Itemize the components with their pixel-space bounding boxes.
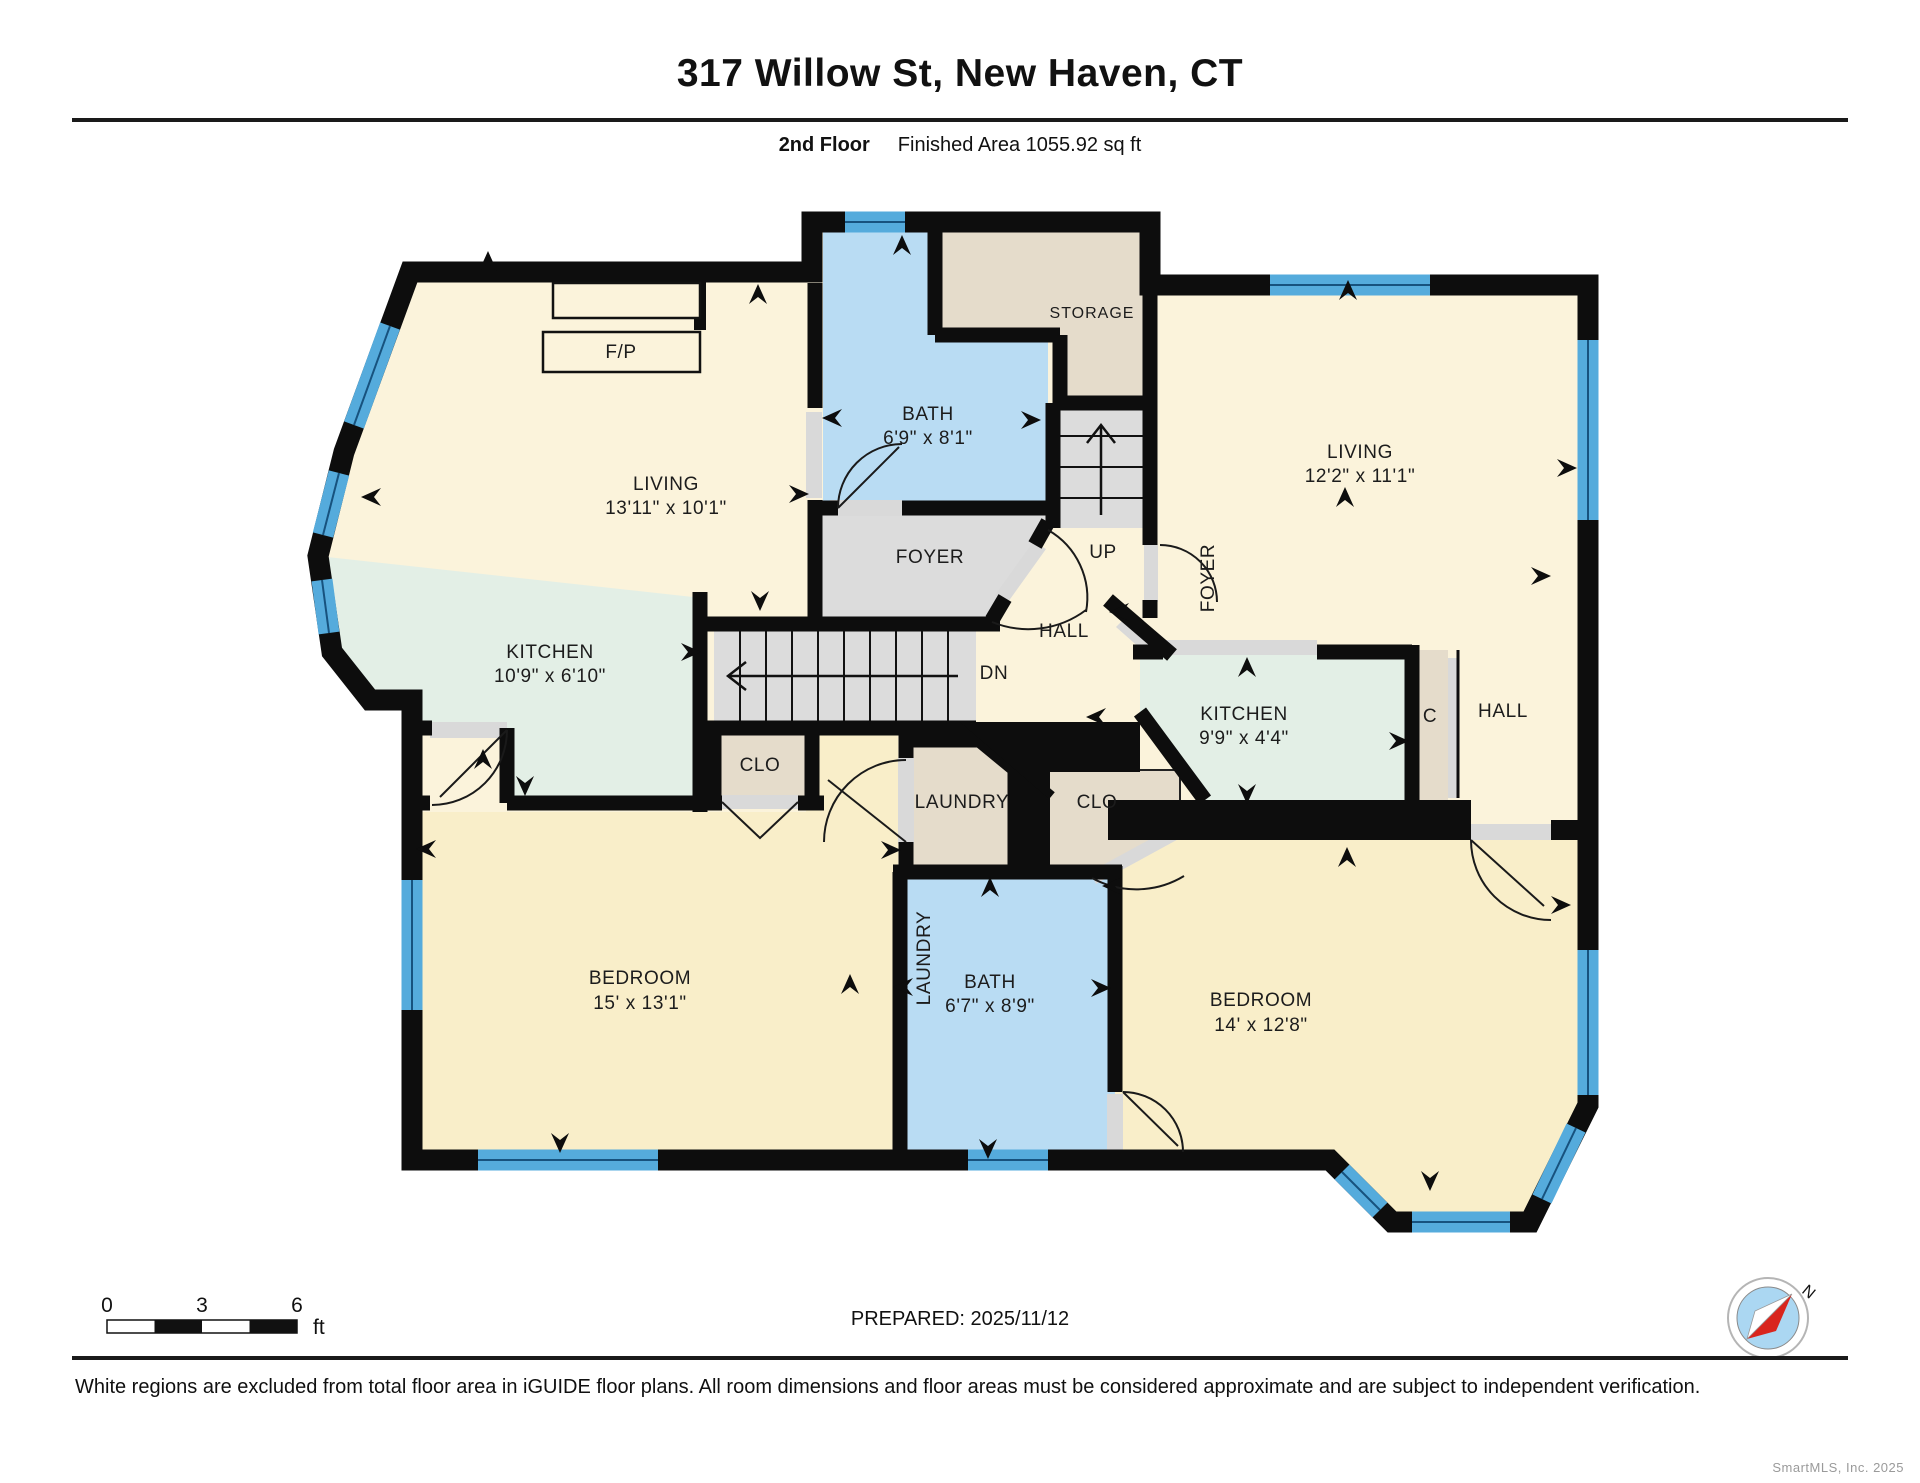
room-label-bath2: BATH: [964, 972, 1016, 993]
room-dims-bath2: 6'7" x 8'9": [945, 996, 1035, 1017]
disclaimer-text: White regions are excluded from total fl…: [75, 1376, 1775, 1399]
room-label-living1: LIVING: [633, 474, 699, 495]
room-dims-living2: 12'2" x 11'1": [1305, 466, 1416, 487]
room-dims-bedroom2: 14' x 12'8": [1214, 1015, 1308, 1036]
room-dims-kitchen2: 9'9" x 4'4": [1199, 728, 1289, 749]
prepared-date: PREPARED: 2025/11/12: [0, 1308, 1920, 1331]
room-label-foyer2: FOYER: [1198, 544, 1219, 612]
room-label-bedroom1: BEDROOM: [589, 968, 691, 989]
stairs-down-label: DN: [980, 663, 1009, 684]
room-label-storage: STORAGE: [1050, 305, 1135, 322]
room-label-closet-c: C: [1423, 706, 1437, 727]
staircase-down: [714, 624, 976, 728]
room-label-living2: LIVING: [1327, 442, 1393, 463]
room-label-hall-center: HALL: [1039, 621, 1089, 642]
room-dims-living1: 13'11" x 10'1": [605, 498, 727, 519]
room-label-bath1: BATH: [902, 404, 954, 425]
room-label-hall-right: HALL: [1478, 701, 1528, 722]
room-label-laundry2: LAUNDRY: [914, 911, 935, 1006]
floor-plan-drawing: LIVING 13'11" x 10'1" KITCHEN 10'9" x 6'…: [0, 0, 1920, 1483]
footer-divider: [72, 1356, 1848, 1360]
stairs-up-label: UP: [1089, 542, 1117, 563]
staircase-up: [1053, 403, 1150, 528]
room-label-laundry1: LAUNDRY: [915, 792, 1010, 813]
floor-plan-page: 317 Willow St, New Haven, CT 2nd FloorFi…: [0, 0, 1920, 1483]
watermark: SmartMLS, Inc. 2025: [1772, 1460, 1904, 1475]
room-dims-bath1: 6'9" x 8'1": [883, 428, 973, 449]
room-label-foyer1: FOYER: [896, 547, 964, 568]
room-label-clo2: CLO: [1077, 792, 1118, 813]
room-label-clo1: CLO: [740, 755, 781, 776]
room-label-kitchen2: KITCHEN: [1200, 704, 1288, 725]
fireplace-label: F/P: [605, 342, 636, 363]
room-dims-bedroom1: 15' x 13'1": [593, 993, 687, 1014]
room-label-kitchen1: KITCHEN: [506, 642, 594, 663]
room-dims-kitchen1: 10'9" x 6'10": [494, 666, 606, 687]
room-label-bedroom2: BEDROOM: [1210, 990, 1312, 1011]
